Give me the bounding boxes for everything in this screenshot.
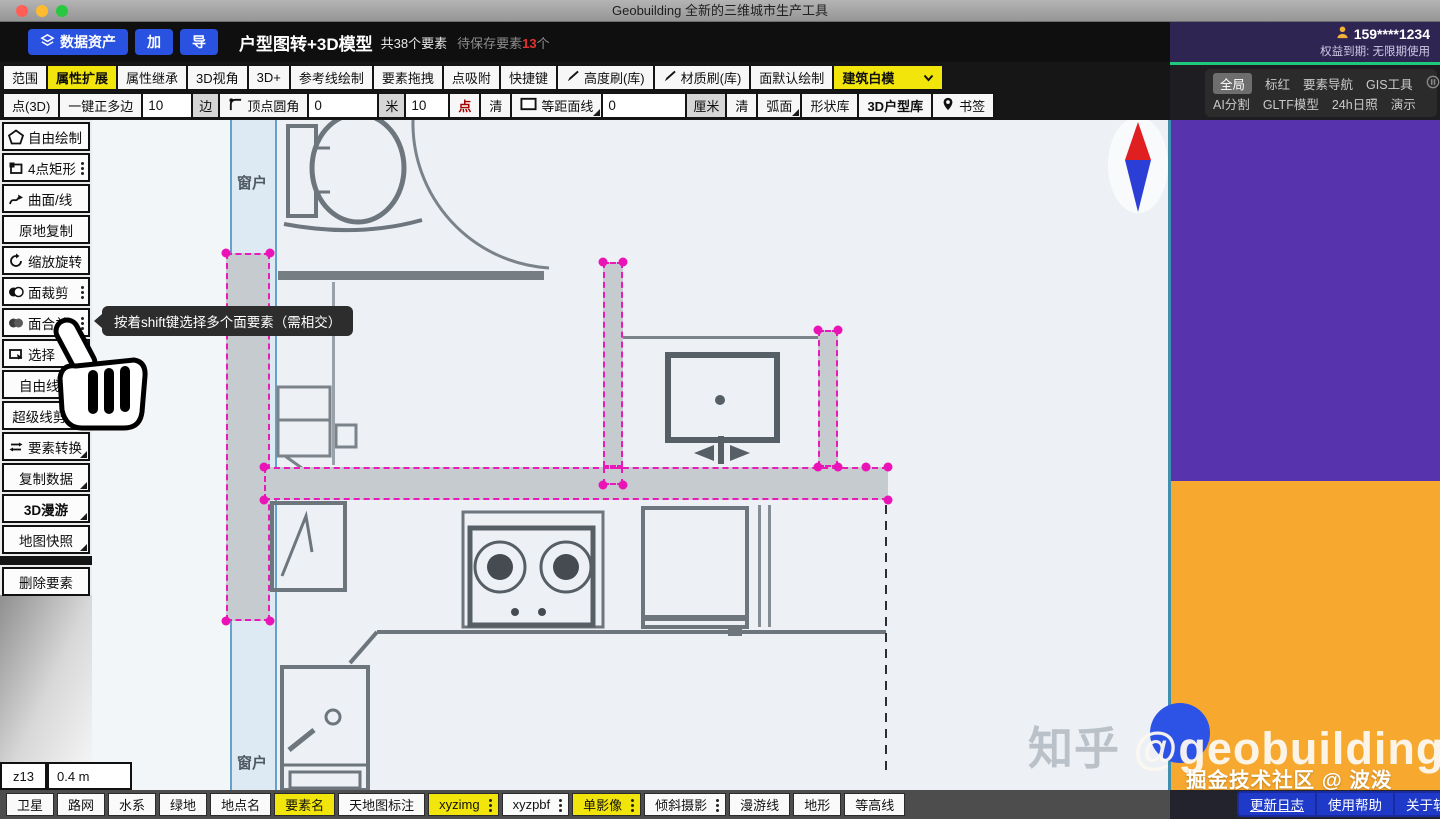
bathroom-wall[interactable] [278, 271, 544, 280]
selection-vertex[interactable] [266, 617, 275, 626]
toolbar-row-2: 点(3D) 一键正多边 边 顶点圆角 米 点 清 等距面线 厘米 清 弧面 形状… [2, 92, 993, 119]
polygon-sides-input[interactable] [141, 92, 193, 119]
selection-vertex[interactable] [834, 326, 843, 335]
kebab-menu-icon[interactable] [559, 799, 562, 802]
selection-vertex[interactable] [862, 463, 871, 472]
kebab-menu-icon[interactable] [716, 799, 719, 802]
tool-element-drag[interactable]: 要素拖拽 [372, 64, 444, 91]
tv-unit[interactable] [668, 355, 777, 464]
selection-vertex[interactable] [884, 463, 893, 472]
compass-icon[interactable] [1108, 120, 1168, 213]
layer-satellite[interactable]: 卫星 [6, 793, 54, 816]
sidebar-item-scale-rotate[interactable]: 缩放旋转 [2, 246, 90, 275]
layers-icon [40, 33, 55, 51]
selected-wall-horizontal[interactable] [264, 467, 888, 500]
kebab-menu-icon[interactable] [81, 286, 84, 289]
data-asset-label: 数据资产 [60, 32, 116, 52]
zoom-level-box: z13 [0, 762, 47, 790]
rotate-icon [8, 253, 24, 269]
left-toolbar: 自由绘制 4点矩形 曲面/线 原地复制 缩放旋转 面裁剪 面合并 选择 自由线剪… [2, 122, 90, 596]
unsaved-count: 13 [522, 36, 536, 51]
pen-icon [663, 69, 677, 86]
tool-range[interactable]: 范围 [2, 64, 48, 91]
layer-single-image[interactable]: 单影像 [572, 793, 641, 816]
account-block: 159****1234 权益到期: 无限期使用 [1170, 22, 1440, 62]
chevron-down-icon [923, 70, 934, 85]
map-edge-gradient [0, 595, 92, 762]
layer-xyzimg[interactable]: xyzimg [428, 793, 498, 816]
sidebar-item-face-merge[interactable]: 面合并 [2, 308, 90, 337]
tool-height-brush[interactable]: 高度刷(库) [556, 64, 655, 91]
layer-roam-line[interactable]: 漫游线 [729, 793, 790, 816]
selection-vertex[interactable] [834, 463, 843, 472]
stove[interactable] [463, 512, 603, 627]
sidebar-item-copy-in-place[interactable]: 原地复制 [2, 215, 90, 244]
sidebar-item-face-clip[interactable]: 面裁剪 [2, 277, 90, 306]
map-scale-box: 0.4 m [47, 762, 132, 790]
snap-point-button[interactable]: 点 [448, 92, 481, 119]
pen-icon [566, 69, 580, 86]
toilet[interactable] [284, 120, 422, 230]
basemap-toolbar: 卫星 路网 水系 绿地 地点名 要素名 天地图标注 xyzimg xyzpbf … [0, 790, 1170, 819]
kebab-menu-icon[interactable] [81, 162, 84, 165]
user-icon [1335, 25, 1350, 43]
export-button[interactable]: 导 [180, 29, 218, 55]
layer-place-names[interactable]: 地点名 [210, 793, 271, 816]
bookmark-button[interactable]: 书签 [931, 92, 995, 119]
kitchen-cabinet-right[interactable] [643, 508, 747, 636]
tab-element-nav[interactable]: 要素导航 [1303, 74, 1353, 93]
sidebar-item-select[interactable]: 选择 [2, 339, 90, 368]
tool-point-snap[interactable]: 点吸附 [442, 64, 501, 91]
fridge[interactable] [282, 667, 368, 790]
window-title: Geobuilding 全新的三维城市生产工具 [0, 0, 1440, 22]
app-header: 数据资产 加 导 户型图转+3D模型 共38个要素 待保存要素13个 [0, 22, 1170, 62]
snap-distance-input[interactable] [404, 92, 450, 119]
equidistant-value-input[interactable] [601, 92, 687, 119]
tab-ai-split[interactable]: AI分割 [1213, 94, 1250, 113]
tooltip: 按着shift键选择多个面要素（需相交） [102, 306, 353, 336]
footer-links: 更新日志 使用帮助 关于软件 [1237, 791, 1440, 817]
pause-circle-icon[interactable] [1426, 75, 1440, 92]
corner-radius-icon [228, 97, 243, 115]
element-count: 共38个要素 [381, 33, 447, 52]
tab-mark-red[interactable]: 标红 [1265, 74, 1290, 93]
purple-panel [1171, 120, 1440, 481]
sidebar-item-element-convert[interactable]: 要素转换 [2, 432, 90, 461]
selection-vertex[interactable] [266, 249, 275, 258]
pentagon-icon [8, 129, 24, 145]
selection-vertex[interactable] [619, 481, 628, 490]
layer-contour[interactable]: 等高线 [844, 793, 905, 816]
tool-default-draw[interactable]: 面默认绘制 [749, 64, 834, 91]
draw-mode-select[interactable]: 建筑白模 [832, 64, 944, 91]
sidebar-item-delete-element[interactable]: 删除要素 [2, 567, 90, 596]
selection-vertex[interactable] [599, 481, 608, 490]
project-title: 户型图转+3D模型 [239, 30, 373, 55]
tool-attr-extend[interactable]: 属性扩展 [46, 64, 118, 91]
selection-vertex[interactable] [222, 617, 231, 626]
selection-vertex[interactable] [814, 326, 823, 335]
tab-gis-tools[interactable]: GIS工具 [1366, 74, 1413, 93]
window-label-bottom: 窗户 [237, 752, 277, 773]
wall-edge-line [758, 505, 761, 627]
tool-3d-plus[interactable]: 3D+ [247, 64, 291, 91]
selection-vertex[interactable] [814, 463, 823, 472]
shape-library-button[interactable]: 形状库 [800, 92, 859, 119]
canvas-left-area [92, 120, 230, 790]
selection-vertex[interactable] [260, 463, 269, 472]
toolbar-row-1: 范围 属性扩展 属性继承 3D视角 3D+ 参考线绘制 要素拖拽 点吸附 快捷键… [2, 64, 942, 91]
door-arc[interactable] [413, 120, 549, 268]
app-window: Geobuilding 全新的三维城市生产工具 数据资产 加 导 户型图转+3D… [0, 0, 1440, 819]
sidebar-item-map-snapshot[interactable]: 地图快照 [2, 525, 90, 554]
checkbox-icon [520, 97, 537, 114]
window-label-top: 窗户 [237, 172, 277, 193]
sidebar-item-copy-data[interactable]: 复制数据 [2, 463, 90, 492]
help-button[interactable]: 使用帮助 [1317, 793, 1395, 815]
selected-wall-right[interactable] [818, 330, 838, 467]
selected-wall-mid[interactable] [603, 262, 623, 467]
selection-vertex[interactable] [222, 249, 231, 258]
tool-attr-inherit[interactable]: 属性继承 [116, 64, 188, 91]
layer-roads[interactable]: 路网 [57, 793, 105, 816]
selection-vertex[interactable] [884, 496, 893, 505]
house-3d-library-button[interactable]: 3D户型库 [857, 92, 933, 119]
layer-xyzpbf[interactable]: xyzpbf [502, 793, 570, 816]
merge-circles-icon [8, 315, 24, 331]
tool-shortcut-keys[interactable]: 快捷键 [499, 64, 558, 91]
curve-icon [8, 191, 24, 207]
toolbar-area: 范围 属性扩展 属性继承 3D视角 3D+ 参考线绘制 要素拖拽 点吸附 快捷键… [0, 62, 1170, 120]
clear-button-2[interactable]: 清 [725, 92, 758, 119]
sidebar-item-curve-line[interactable]: 曲面/线 [2, 184, 90, 213]
sides-unit-label: 边 [191, 92, 220, 119]
bathroom-fixtures[interactable] [278, 387, 356, 471]
fillet-unit-label: 米 [377, 92, 406, 119]
pin-icon [941, 96, 955, 115]
map-canvas[interactable]: 窗户 窗户 [92, 120, 1170, 790]
tool-vertex-fillet[interactable]: 顶点圆角 [218, 92, 309, 119]
kitchen-counter[interactable] [350, 632, 886, 663]
user-phone[interactable]: 159****1234 [1354, 26, 1430, 42]
tool-one-key-polygon[interactable]: 一键正多边 [58, 92, 143, 119]
tool-guide-line[interactable]: 参考线绘制 [289, 64, 374, 91]
selection-vertex[interactable] [619, 258, 628, 267]
kebab-menu-icon[interactable] [631, 799, 634, 802]
mac-titlebar: Geobuilding 全新的三维城市生产工具 [0, 0, 1440, 22]
tool-arc-face[interactable]: 弧面 [756, 92, 802, 119]
selection-vertex[interactable] [260, 496, 269, 505]
tools-panel: 全局 标红 要素导航 GIS工具 AI分割 GLTF模型 24h日照 演示 [1205, 69, 1437, 117]
layer-oblique-photo[interactable]: 倾斜摄影 [644, 793, 726, 816]
fillet-radius-input[interactable] [307, 92, 379, 119]
add-button[interactable]: 加 [135, 29, 173, 55]
layer-green[interactable]: 绿地 [159, 793, 207, 816]
tab-global[interactable]: 全局 [1213, 73, 1252, 94]
tool-3d-view[interactable]: 3D视角 [186, 64, 249, 91]
clip-circles-icon [8, 284, 24, 300]
kebab-menu-icon[interactable] [81, 317, 84, 320]
wall-edge-line [768, 505, 771, 627]
living-wall-line[interactable] [623, 336, 819, 339]
layer-element-names[interactable]: 要素名 [274, 793, 335, 816]
equidistant-unit-label: 厘米 [685, 92, 727, 119]
sidebar-separator [0, 556, 92, 565]
kitchen-cabinet-left[interactable] [272, 503, 345, 590]
sidebar-item-free-draw[interactable]: 自由绘制 [2, 122, 90, 151]
sidebar-item-super-line-scissors[interactable]: 超级线剪刀 [2, 401, 90, 430]
changelog-button[interactable]: 更新日志 [1239, 793, 1317, 815]
select-rect-icon [8, 346, 24, 362]
selection-vertex[interactable] [599, 258, 608, 267]
tab-gltf-model[interactable]: GLTF模型 [1263, 94, 1319, 113]
tab-24h-sunlight[interactable]: 24h日照 [1332, 94, 1378, 113]
about-button[interactable]: 关于软件 [1395, 793, 1440, 815]
canvas-edge-line [1168, 120, 1171, 790]
rectangle-icon [8, 160, 24, 176]
swap-arrows-icon [8, 439, 24, 455]
tool-material-brush[interactable]: 材质刷(库) [653, 64, 752, 91]
layer-terrain[interactable]: 地形 [793, 793, 841, 816]
tab-demo[interactable]: 演示 [1391, 94, 1416, 113]
unsaved-status: 待保存要素13个 [457, 33, 550, 52]
clear-button-1[interactable]: 清 [479, 92, 512, 119]
sidebar-item-free-line-cut[interactable]: 自由线剪 [2, 370, 90, 399]
sidebar-item-4pt-rect[interactable]: 4点矩形 [2, 153, 90, 182]
license-status: 权益到期: 无限期使用 [1170, 43, 1430, 59]
community-watermark: 掘金技术社区 @ 波泼 [1186, 763, 1392, 793]
sidebar-item-3d-roam[interactable]: 3D漫游 [2, 494, 90, 523]
data-asset-button[interactable]: 数据资产 [28, 29, 128, 55]
kebab-menu-icon[interactable] [489, 799, 492, 802]
layer-water[interactable]: 水系 [108, 793, 156, 816]
tool-point-3d[interactable]: 点(3D) [2, 92, 60, 119]
layer-tianditu-labels[interactable]: 天地图标注 [338, 793, 425, 816]
tool-equidistant-line[interactable]: 等距面线 [510, 92, 603, 119]
